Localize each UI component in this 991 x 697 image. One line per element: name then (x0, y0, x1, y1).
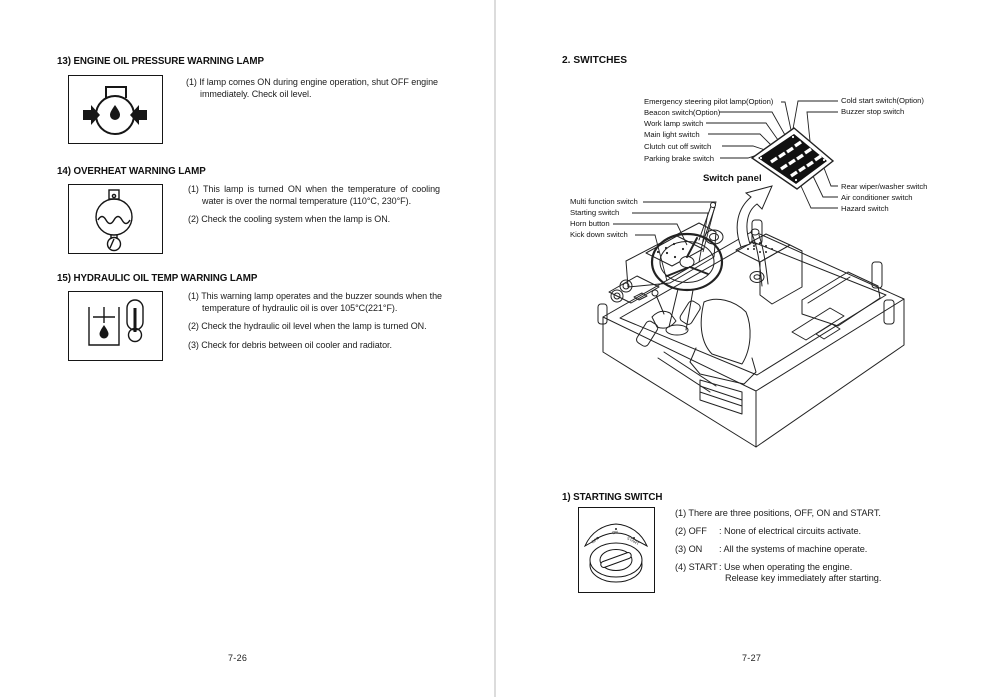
key-position-label: (2) OFF (675, 526, 719, 537)
manual-two-page-spread: 13) ENGINE OIL PRESSURE WARNING LAMP (1)… (0, 0, 991, 697)
label-rear-wiper-washer-switch: Rear wiper/washer switch (841, 182, 927, 191)
instruction-item: (1) If lamp comes ON during engine opera… (186, 77, 438, 101)
label-air-conditioner-switch: Air conditioner switch (841, 193, 913, 202)
instruction-item: (2) OFF : None of electrical circuits ac… (675, 526, 975, 537)
label-multi-function-switch: Multi function switch (570, 197, 638, 206)
engine-oil-pressure-lamp-symbol (68, 75, 163, 144)
key-position-desc: : All the systems of machine operate. (719, 544, 867, 555)
label-clutch-cut-off-switch: Clutch cut off switch (644, 142, 711, 151)
label-cold-start-switch: Cold start switch(Option) (841, 96, 924, 105)
cab-line-drawing (598, 203, 904, 448)
desc-line-1: : Use when operating the engine. (719, 562, 881, 573)
page-number-left: 7-26 (228, 653, 247, 663)
key-position-label: (4) START (675, 562, 719, 585)
label-kick-down-switch: Kick down switch (570, 230, 628, 239)
instruction-item: (1) This warning lamp operates and the b… (188, 291, 442, 315)
key-position-label: (3) ON (675, 544, 719, 555)
hydraulic-oil-temp-text: (1) This warning lamp operates and the b… (188, 291, 442, 358)
instruction-item: (4) START : Use when operating the engin… (675, 562, 975, 585)
overheat-text: (1) This lamp is turned ON when the temp… (188, 184, 440, 233)
page-number-right: 7-27 (742, 653, 761, 663)
instruction-item: (3) Check for debris between oil cooler … (188, 340, 442, 352)
instruction-item: (1) This lamp is turned ON when the temp… (188, 184, 440, 208)
label-work-lamp-switch: Work lamp switch (644, 119, 703, 128)
oil-pressure-icon (69, 76, 161, 142)
instruction-item: (2) Check the cooling system when the la… (188, 214, 440, 226)
instruction-item: (3) ON : All the systems of machine oper… (675, 544, 975, 555)
hydraulic-oil-temp-lamp-symbol (68, 291, 163, 361)
instruction-item: (2) Check the hydraulic oil level when t… (188, 321, 442, 333)
label-emergency-steering-pilot-lamp: Emergency steering pilot lamp(Option) (644, 97, 773, 106)
label-buzzer-stop-switch: Buzzer stop switch (841, 107, 904, 116)
label-parking-brake-switch: Parking brake switch (644, 154, 714, 163)
switch-panel-inset (752, 128, 833, 189)
label-hazard-switch: Hazard switch (841, 204, 889, 213)
section-title-hydraulic-oil-temp: 15) HYDRAULIC OIL TEMP WARNING LAMP (57, 273, 257, 284)
page-divider (494, 0, 496, 697)
starting-switch-symbol: OFF ON START (578, 507, 655, 593)
section-title-switches: 2. SWITCHES (562, 55, 627, 66)
label-horn-button: Horn button (570, 219, 610, 228)
starting-switch-text: (1) There are three positions, OFF, ON a… (675, 508, 975, 591)
engine-oil-pressure-text: (1) If lamp comes ON during engine opera… (186, 77, 438, 107)
key-position-on: ON (612, 530, 619, 536)
overheat-lamp-symbol (68, 184, 163, 254)
section-title-overheat: 14) OVERHEAT WARNING LAMP (57, 166, 206, 177)
curved-arrow (737, 186, 772, 247)
key-switch-icon: OFF ON START (579, 508, 653, 591)
hydraulic-oil-temp-icon (69, 292, 161, 359)
panel-dot-details (657, 242, 773, 258)
section-title-starting-switch: 1) STARTING SWITCH (562, 492, 662, 503)
label-starting-switch: Starting switch (570, 208, 619, 217)
section-title-engine-oil-pressure: 13) ENGINE OIL PRESSURE WARNING LAMP (57, 56, 264, 67)
label-beacon-switch: Beacon switch(Option) (644, 108, 720, 117)
key-position-desc: : None of electrical circuits activate. (719, 526, 861, 537)
instruction-item: (1) There are three positions, OFF, ON a… (675, 508, 975, 519)
overheat-icon (69, 185, 161, 252)
switch-panel-caption: Switch panel (703, 173, 762, 184)
label-main-light-switch: Main light switch (644, 130, 700, 139)
desc-line-2: Release key immediately after starting. (719, 573, 881, 584)
key-position-desc: : Use when operating the engine. Release… (719, 562, 881, 585)
